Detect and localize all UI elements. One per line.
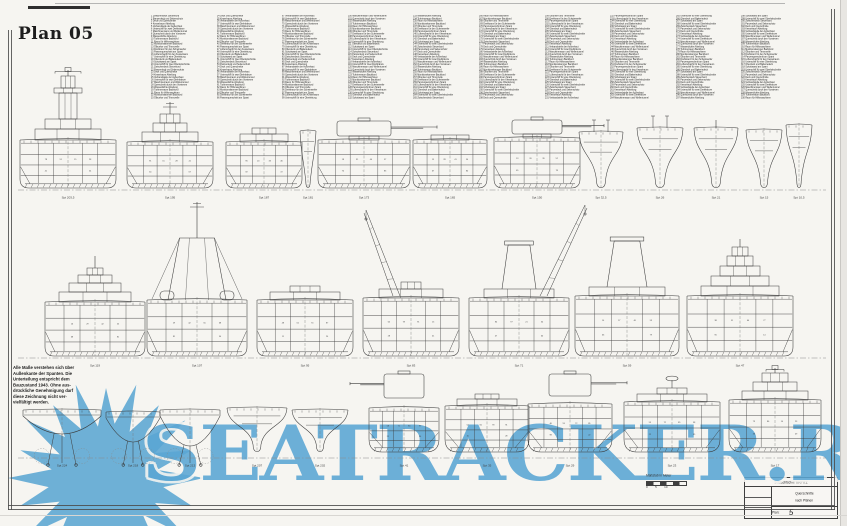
- svg-text:Spt 17: Spt 17: [771, 464, 780, 468]
- legend-item: 297 Wasserdichte Abteilung: [676, 97, 739, 100]
- svg-text:90: 90: [715, 335, 718, 337]
- svg-text:81: 81: [117, 337, 120, 339]
- svg-text:65: 65: [516, 170, 519, 172]
- svg-text:16: 16: [71, 324, 74, 326]
- ship-section: 587184972134Spt 41: [350, 371, 439, 468]
- svg-text:73: 73: [753, 421, 756, 423]
- paper-edge: [841, 0, 847, 526]
- svg-text:28: 28: [505, 435, 508, 437]
- paper-fold-line: [0, 515, 847, 516]
- svg-text:Spt 10,5: Spt 10,5: [793, 196, 805, 200]
- ship-section: 738610233649Spt 17: [729, 366, 821, 468]
- svg-text:51: 51: [731, 320, 734, 322]
- svg-text:Spt 47: Spt 47: [736, 364, 745, 368]
- svg-text:61: 61: [297, 323, 300, 325]
- ship-section: Spt 26: [637, 116, 683, 200]
- svg-text:40: 40: [634, 320, 637, 322]
- scale-tick: 10: [664, 486, 667, 489]
- svg-text:Spt 95: Spt 95: [301, 364, 310, 368]
- ship-section: 597285982235Spt 23: [624, 376, 720, 467]
- svg-text:22: 22: [649, 434, 652, 436]
- ship-section: 657891152841Spt 83: [363, 210, 459, 368]
- svg-text:41: 41: [45, 171, 48, 173]
- svg-text:91: 91: [505, 424, 508, 426]
- svg-text:Spt 26: Spt 26: [656, 196, 665, 200]
- svg-text:97: 97: [419, 425, 422, 427]
- svg-text:67: 67: [432, 171, 435, 173]
- svg-text:39: 39: [542, 158, 545, 160]
- svg-text:54: 54: [466, 159, 469, 161]
- svg-text:15: 15: [74, 159, 77, 161]
- svg-text:Spt 107: Spt 107: [192, 364, 203, 368]
- legend-item: 165 Zwischendeck Steuerbord: [413, 97, 476, 100]
- ship-section: Spt 207: [227, 406, 287, 468]
- svg-text:20: 20: [257, 160, 260, 162]
- svg-text:91: 91: [60, 159, 63, 161]
- ship-section: Spt 224: [23, 408, 101, 468]
- legend-item: 99 Unterschiff für eine Oberleitung: [282, 97, 345, 100]
- svg-text:15: 15: [467, 435, 470, 437]
- svg-text:81: 81: [173, 336, 176, 338]
- svg-text:Spt 181: Spt 181: [303, 196, 314, 200]
- svg-text:79: 79: [650, 335, 653, 337]
- svg-text:31: 31: [356, 159, 359, 161]
- svg-text:Spt 150: Spt 150: [532, 196, 543, 200]
- scale-tick: 0: [646, 486, 648, 489]
- legend-column: 265 Unterschiff für eine Oberleitung266 …: [676, 15, 739, 102]
- svg-text:Spt 21: Spt 21: [712, 196, 721, 200]
- svg-text:29: 29: [173, 323, 176, 325]
- svg-text:78: 78: [403, 321, 406, 323]
- svg-text:42: 42: [188, 323, 191, 325]
- svg-text:48: 48: [282, 323, 285, 325]
- scan-edge-line: [55, 3, 785, 4]
- svg-text:26: 26: [529, 158, 532, 160]
- ship-section: Spt 15: [746, 128, 782, 200]
- svg-text:47: 47: [495, 335, 498, 337]
- svg-text:72: 72: [664, 422, 667, 424]
- svg-text:Spt 195: Spt 195: [165, 196, 176, 200]
- svg-text:34: 34: [541, 321, 544, 323]
- frame-left-line: [8, 30, 9, 510]
- svg-text:Spt 23: Spt 23: [668, 464, 677, 468]
- svg-text:42: 42: [101, 324, 104, 326]
- svg-text:49: 49: [795, 433, 798, 435]
- svg-text:28: 28: [388, 335, 391, 337]
- svg-text:84: 84: [408, 425, 411, 427]
- svg-text:28: 28: [175, 160, 178, 162]
- svg-text:80: 80: [466, 171, 469, 173]
- svg-text:70: 70: [342, 171, 345, 173]
- svg-text:Spt 213: Spt 213: [185, 464, 196, 468]
- ship-section: Spt 21: [694, 120, 738, 200]
- ship-section: 465972859822Spt 29: [528, 371, 627, 468]
- ship-section: 142740536679Spt 59: [575, 237, 679, 368]
- legend-column: 298 Schottwand am Spant299 Unterschiff f…: [741, 15, 804, 102]
- paper-edge-line: [840, 0, 841, 526]
- legend-column: 166 Raum für Hilfsmaschinen167 Munitions…: [479, 15, 542, 102]
- svg-text:96: 96: [245, 160, 248, 162]
- svg-text:36: 36: [753, 433, 756, 435]
- svg-text:72: 72: [280, 171, 283, 173]
- svg-text:15: 15: [432, 321, 435, 323]
- legend-column: 100 Maschinenraum und Wellentunnel101 Qu…: [348, 15, 411, 102]
- legend-item: 264 Maschinenraum und Wellentunnel: [610, 97, 673, 100]
- scale-caption: Maßstab in Meter: [646, 474, 676, 478]
- svg-text:33: 33: [269, 160, 272, 162]
- svg-text:Spt 173: Spt 173: [359, 196, 370, 200]
- ship-section: 162942556881Spt 119: [45, 256, 145, 368]
- svg-text:11: 11: [282, 336, 285, 338]
- svg-text:52: 52: [556, 158, 559, 160]
- svg-text:Spt 165: Spt 165: [445, 196, 456, 200]
- ship-section: Spt 181: [300, 129, 316, 200]
- svg-text:Spt 202: Spt 202: [315, 464, 326, 468]
- legend-column: 1 Zwischendeck Steuerbord2 Panzerdeck un…: [151, 15, 214, 102]
- svg-text:13: 13: [516, 158, 519, 160]
- svg-text:34: 34: [419, 436, 422, 438]
- scale-tick: 5: [655, 486, 657, 489]
- svg-text:41: 41: [432, 335, 435, 337]
- svg-text:78: 78: [45, 159, 48, 161]
- svg-text:57: 57: [384, 159, 387, 161]
- svg-text:77: 77: [763, 320, 766, 322]
- ship-section: 486174871124Spt 95: [257, 286, 353, 368]
- legend-item: 132 Schottwand am Spant: [348, 97, 411, 100]
- svg-text:68: 68: [219, 323, 222, 325]
- scale-ticks: 0 5 10: [646, 486, 668, 489]
- svg-text:24: 24: [326, 336, 329, 338]
- svg-text:86: 86: [767, 421, 770, 423]
- svg-text:Spt 15: Spt 15: [760, 196, 769, 200]
- ship-section: 849721344760Spt 71: [469, 205, 587, 368]
- svg-text:Spt 29: Spt 29: [566, 464, 575, 468]
- ship-section: 183144577083Spt 173: [318, 118, 437, 200]
- svg-text:55: 55: [117, 324, 120, 326]
- svg-text:58: 58: [387, 425, 390, 427]
- note-line: vielfältigt werden.: [13, 400, 101, 406]
- svg-text:87: 87: [326, 323, 329, 325]
- scale-bar: Maßstab in Meter 0 5 10: [646, 474, 706, 492]
- svg-text:54: 54: [149, 171, 152, 173]
- svg-text:41: 41: [454, 159, 457, 161]
- svg-text:68: 68: [71, 337, 74, 339]
- ship-section: Spt 10,5: [786, 123, 812, 200]
- legend-column: 34 Deck und Querschnitte35 Kesselraum Ab…: [217, 15, 280, 102]
- ship-section: 962033465972Spt 187: [226, 128, 302, 200]
- svg-text:Spt 207: Spt 207: [252, 464, 263, 468]
- svg-text:78: 78: [556, 170, 559, 172]
- frame-bottom-line: [8, 509, 835, 510]
- legend-column: 232 Panzerquerschnitt am Spant233 Lüfter…: [610, 15, 673, 102]
- svg-text:94: 94: [219, 336, 222, 338]
- frame-right-line: [831, 9, 832, 510]
- svg-text:97: 97: [510, 321, 513, 323]
- legend-column: 67 Verbandsteile der Außenhaut68 Untersc…: [282, 15, 345, 102]
- svg-text:71: 71: [398, 425, 401, 427]
- svg-text:52: 52: [467, 424, 470, 426]
- legend-item: 231 Verbandsteile der Außenhaut: [545, 97, 608, 100]
- svg-text:67: 67: [189, 171, 192, 173]
- ship-section: 385164779014Spt 47: [687, 239, 793, 368]
- legend-item: 66 Panzerquerschnitt am Spant: [217, 97, 280, 100]
- ship-section: 132639526578Spt 150: [494, 117, 604, 200]
- svg-text:44: 44: [370, 159, 373, 161]
- svg-text:15: 15: [432, 159, 435, 161]
- svg-text:15: 15: [162, 160, 165, 162]
- svg-text:72: 72: [575, 423, 578, 425]
- svg-text:14: 14: [763, 335, 766, 337]
- svg-text:Spt 35: Spt 35: [483, 464, 492, 468]
- svg-text:46: 46: [280, 160, 283, 162]
- legend-item: 198 Deck und Querschnitte: [479, 97, 542, 100]
- svg-text:65: 65: [388, 321, 391, 323]
- svg-text:Spt 218: Spt 218: [128, 464, 139, 468]
- ship-section: Spt 202: [292, 408, 348, 468]
- svg-text:74: 74: [311, 323, 314, 325]
- svg-text:27: 27: [618, 320, 621, 322]
- parts-legend: 1 Zwischendeck Steuerbord2 Panzerdeck un…: [0, 0, 847, 110]
- registration-mark: [28, 6, 90, 9]
- svg-text:65: 65: [480, 424, 483, 426]
- ship-section: Spt 32,5: [579, 120, 623, 200]
- svg-text:83: 83: [384, 171, 387, 173]
- svg-text:22: 22: [588, 435, 591, 437]
- svg-text:38: 38: [715, 320, 718, 322]
- svg-text:98: 98: [693, 422, 696, 424]
- ship-section: 294255688194Spt 107: [147, 202, 247, 368]
- frame-bottom-line: [8, 505, 835, 506]
- legend-item: 330 Raum für Hilfsmaschinen: [741, 97, 804, 100]
- svg-text:Spt 224: Spt 224: [57, 464, 68, 468]
- ship-section: 526578911528Spt 35: [445, 394, 529, 468]
- svg-text:23: 23: [795, 421, 798, 423]
- legend-column: 199 Ölbunker und Trimmzelle200 Drehkranz…: [545, 15, 608, 102]
- legend-item: 33 Ölbunker und Trimmzelle: [151, 97, 214, 100]
- svg-text:21: 21: [525, 321, 528, 323]
- svg-text:Spt 32,5: Spt 32,5: [595, 196, 607, 200]
- svg-text:91: 91: [149, 160, 152, 162]
- svg-text:35: 35: [693, 434, 696, 436]
- frame-right-line: [834, 9, 835, 510]
- svg-text:53: 53: [650, 320, 653, 322]
- svg-text:28: 28: [443, 159, 446, 161]
- legend-column: 133 Wasserdichte Abteilung134 Turbinenra…: [413, 15, 476, 102]
- svg-text:28: 28: [89, 159, 92, 161]
- svg-text:Spt 203,5: Spt 203,5: [62, 196, 75, 200]
- svg-text:60: 60: [541, 335, 544, 337]
- svg-text:21: 21: [387, 436, 390, 438]
- svg-text:59: 59: [649, 422, 652, 424]
- svg-text:85: 85: [678, 422, 681, 424]
- svg-text:10: 10: [781, 421, 784, 423]
- svg-text:66: 66: [602, 335, 605, 337]
- svg-text:Spt 83: Spt 83: [407, 364, 416, 368]
- svg-text:55: 55: [203, 323, 206, 325]
- svg-text:Spt 187: Spt 187: [259, 196, 270, 200]
- scanned-plan-sheet: Plan 05 1 Zwischendeck Steuerbord2 Panze…: [0, 0, 847, 526]
- svg-text:64: 64: [747, 320, 750, 322]
- frame-left-line: [11, 30, 12, 510]
- ship-section: 911528415467Spt 195: [127, 102, 213, 200]
- svg-text:Spt 59: Spt 59: [623, 364, 632, 368]
- svg-text:59: 59: [563, 423, 566, 425]
- svg-text:85: 85: [588, 423, 591, 425]
- svg-text:29: 29: [86, 324, 89, 326]
- svg-text:41: 41: [189, 160, 192, 162]
- svg-text:18: 18: [342, 159, 345, 161]
- note-block: Alle Maße verstehen sich überAußenkante …: [13, 365, 101, 405]
- svg-text:91: 91: [417, 321, 420, 323]
- svg-text:14: 14: [602, 320, 605, 322]
- svg-text:54: 54: [89, 171, 92, 173]
- svg-text:Spt 71: Spt 71: [515, 364, 524, 368]
- svg-text:98: 98: [550, 435, 553, 437]
- svg-text:78: 78: [492, 424, 495, 426]
- svg-text:46: 46: [550, 423, 553, 425]
- svg-text:84: 84: [495, 321, 498, 323]
- svg-text:Spt 41: Spt 41: [400, 464, 409, 468]
- svg-text:59: 59: [245, 171, 248, 173]
- ship-section: Spt 213: [160, 408, 220, 468]
- ship-section: Spt 218: [106, 410, 160, 468]
